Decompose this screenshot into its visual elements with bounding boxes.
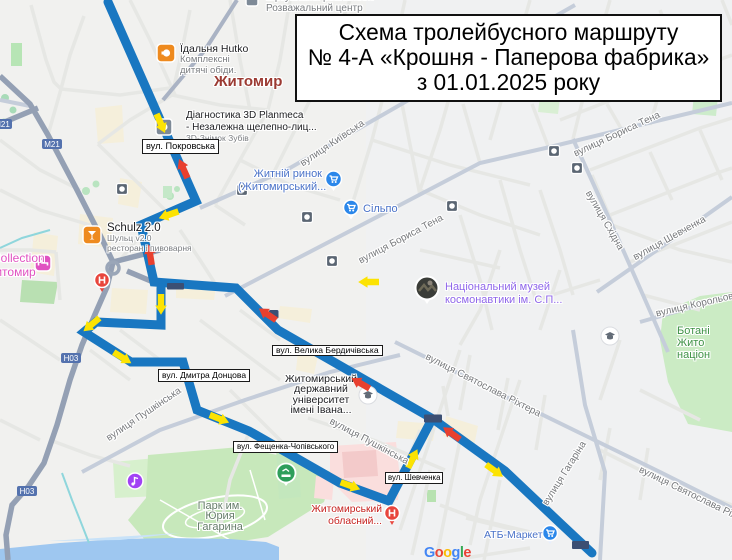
svg-text:Н03: Н03 [64, 354, 79, 363]
svg-text:Н03: Н03 [20, 487, 35, 496]
svg-text:М21: М21 [0, 120, 10, 129]
svg-text:М21: М21 [44, 140, 60, 149]
